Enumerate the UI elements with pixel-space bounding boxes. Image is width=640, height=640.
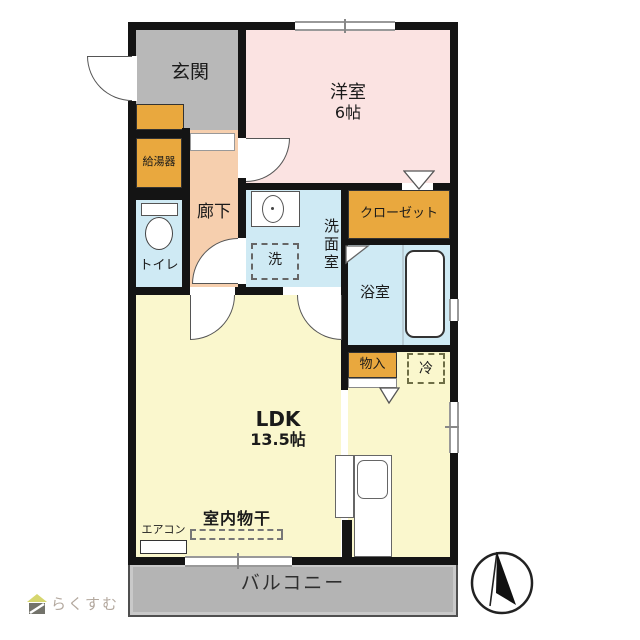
wall-segment: [235, 287, 283, 295]
drying-bar: [190, 529, 283, 540]
window-top-tick: [344, 19, 346, 33]
logo-text: らくすむ: [51, 596, 131, 613]
wall-segment: [341, 345, 458, 352]
balcony-door-tick: [237, 553, 239, 569]
wall-segment: [128, 130, 190, 138]
wall-segment: [450, 22, 458, 565]
label-senmen: 洗面室: [321, 206, 339, 284]
aircon-unit: [140, 540, 187, 554]
label-toilet: トイレ: [136, 259, 182, 274]
window-right-bath: [449, 299, 459, 321]
wall-segment: [128, 287, 190, 295]
bath-divider: [402, 245, 404, 345]
wall-segment: [128, 188, 190, 200]
label-drying: 室内物干: [185, 510, 289, 528]
label-ldk-size: 13.5帖: [218, 431, 338, 449]
sink-faucet-dot: [271, 207, 274, 210]
label-fridge: 冷: [407, 361, 445, 377]
label-bath: 浴室: [348, 284, 402, 301]
monoire-door-mark: [379, 387, 400, 405]
label-youshitsu: 洋室 6帖: [288, 83, 408, 122]
wall-segment: [238, 30, 246, 138]
label-ldk-name: LDK: [218, 408, 338, 431]
wall-segment: [238, 190, 246, 238]
label-monoire: 物入: [348, 358, 397, 373]
label-balcony: バルコニー: [128, 573, 458, 595]
label-ldk: LDK 13.5帖: [218, 408, 338, 449]
wall-segment: [341, 352, 348, 390]
wall-segment: [341, 183, 348, 352]
window-right-ldk-tick: [445, 426, 459, 428]
label-youshitsu-name: 洋室: [288, 83, 408, 104]
bathtub: [405, 250, 445, 338]
toilet-bowl: [145, 217, 173, 250]
closet-door-mark: [403, 170, 435, 191]
toilet-shelf: [141, 203, 178, 216]
kitchen-sink: [357, 460, 388, 499]
box-shoe-cabinet: [136, 104, 184, 130]
genkan-step: [190, 133, 235, 151]
door-arc-entrance: [87, 56, 132, 101]
label-aircon: エアコン: [139, 524, 188, 537]
wall-segment: [342, 520, 352, 557]
wall-segment: [128, 22, 458, 30]
label-closet: クローゼット: [348, 207, 450, 222]
logo-house-icon: [26, 593, 48, 615]
wall-segment: [182, 128, 190, 295]
label-kyutouki: 給湯器: [136, 156, 182, 169]
label-genkan: 玄関: [150, 62, 230, 84]
label-washer: 洗: [251, 252, 299, 268]
label-youshitsu-size: 6帖: [288, 104, 408, 122]
wall-segment: [128, 557, 458, 565]
floorplan-canvas: 玄関 洋室 6帖 給湯器 廊下 トイレ 洗面室 洗 クローゼット 浴室 物入 冷…: [0, 0, 640, 640]
bath-door-mark: [344, 244, 372, 266]
label-rouka: 廊下: [190, 203, 238, 223]
north-arrow-icon: [469, 549, 539, 619]
kitchen-counter-side: [335, 455, 354, 518]
